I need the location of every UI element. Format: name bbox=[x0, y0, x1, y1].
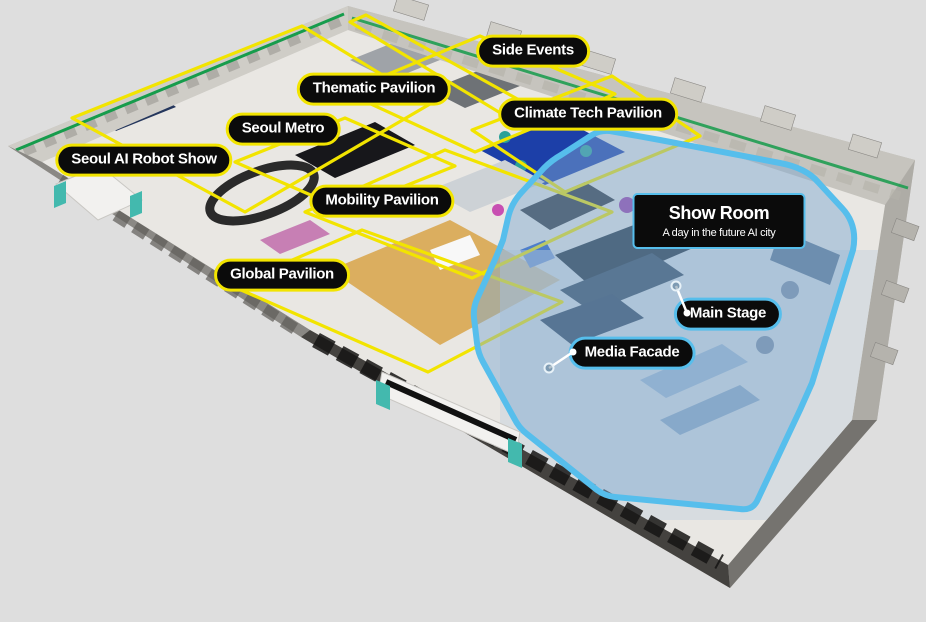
label-climate-tech-pavilion: Climate Tech Pavilion bbox=[498, 98, 678, 131]
label-thematic-pavilion: Thematic Pavilion bbox=[297, 73, 451, 106]
venue-map: Side Events Thematic Pavilion Seoul Metr… bbox=[0, 0, 926, 622]
label-side-events: Side Events bbox=[476, 35, 590, 68]
label-media-facade: Media Facade bbox=[569, 337, 696, 370]
label-mobility-pavilion-text: Mobility Pavilion bbox=[325, 192, 438, 209]
label-global-pavilion-text: Global Pavilion bbox=[230, 266, 334, 283]
label-seoul-metro-text: Seoul Metro bbox=[242, 120, 325, 137]
label-climate-tech-pavilion-text: Climate Tech Pavilion bbox=[514, 105, 662, 122]
label-seoul-ai-robot-show-text: Seoul AI Robot Show bbox=[71, 151, 216, 168]
label-side-events-text: Side Events bbox=[492, 42, 574, 59]
label-main-stage: Main Stage bbox=[674, 298, 782, 331]
label-main-stage-text: Main Stage bbox=[690, 305, 766, 322]
label-seoul-ai-robot-show: Seoul AI Robot Show bbox=[55, 144, 232, 177]
label-thematic-pavilion-text: Thematic Pavilion bbox=[313, 80, 435, 97]
expo-venue-map-page: { "map": { "colors": { "background": "#D… bbox=[0, 0, 926, 622]
label-show-room: Show Room A day in the future AI city bbox=[633, 193, 806, 249]
label-global-pavilion: Global Pavilion bbox=[214, 259, 350, 292]
label-mobility-pavilion: Mobility Pavilion bbox=[309, 185, 454, 218]
label-seoul-metro: Seoul Metro bbox=[226, 113, 341, 146]
show-room-title: Show Room bbox=[641, 203, 798, 224]
label-media-facade-text: Media Facade bbox=[585, 344, 680, 361]
show-room-subtitle: A day in the future AI city bbox=[641, 227, 798, 239]
